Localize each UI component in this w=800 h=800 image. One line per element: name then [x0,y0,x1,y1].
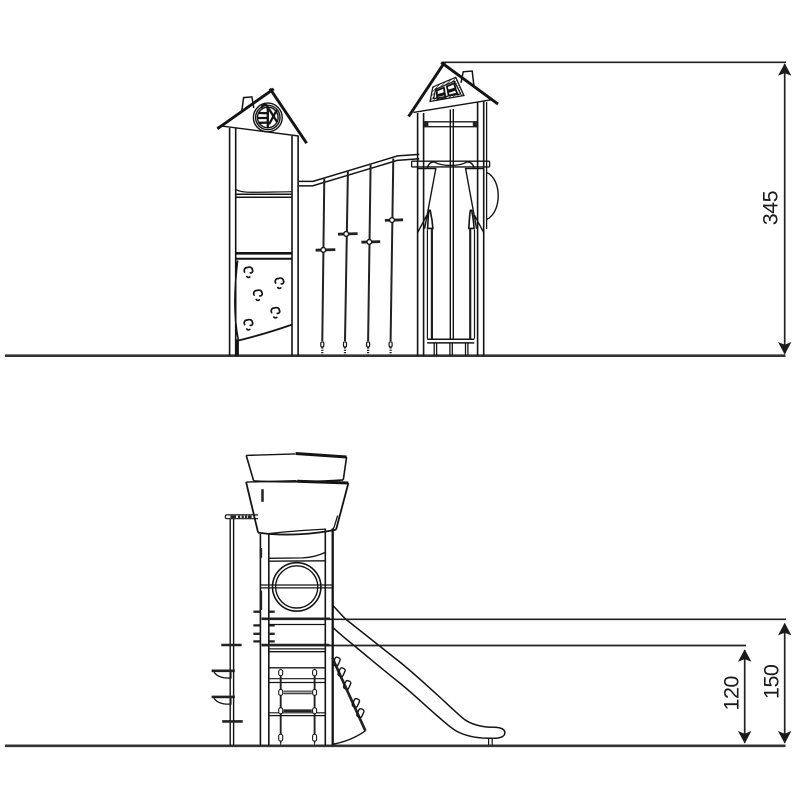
svg-text:345: 345 [759,190,783,225]
svg-text:150: 150 [760,664,784,699]
svg-text:120: 120 [720,676,744,711]
